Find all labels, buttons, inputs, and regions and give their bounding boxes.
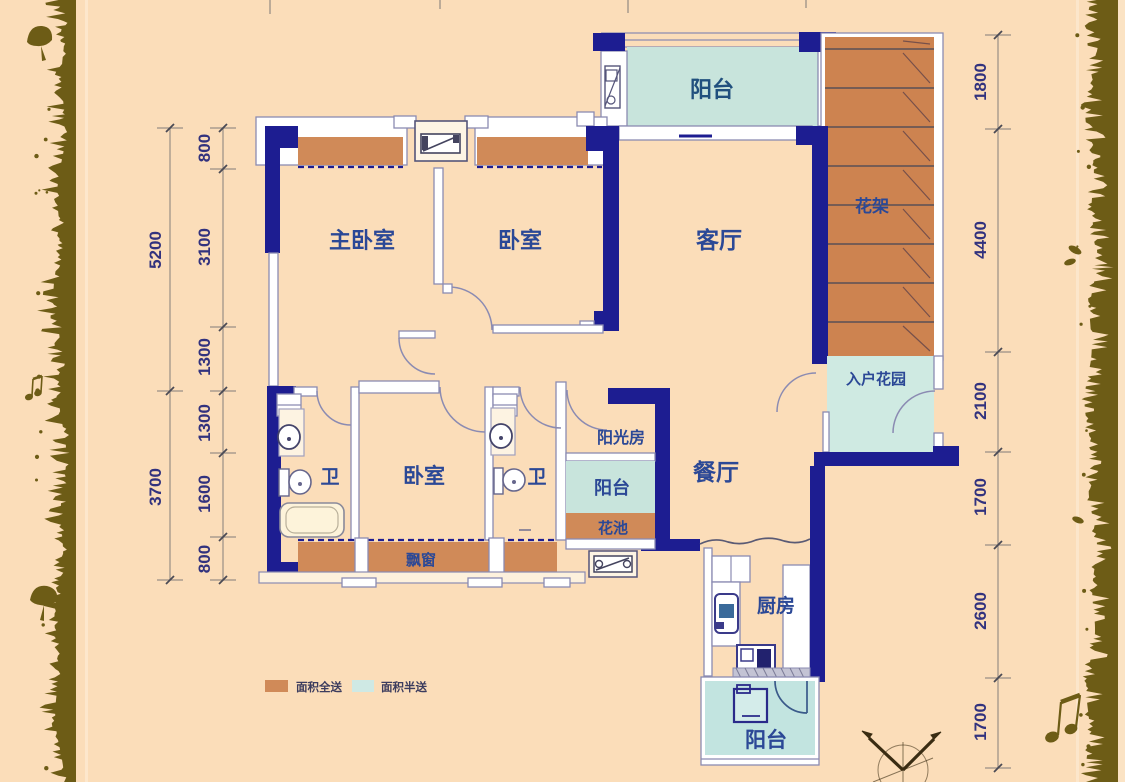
svg-text:800: 800 [195,545,214,573]
svg-text:2100: 2100 [971,382,990,420]
svg-text:4400: 4400 [971,221,990,259]
svg-text:5200: 5200 [146,231,165,269]
svg-text:卫: 卫 [527,467,546,488]
svg-text:花架: 花架 [855,196,889,216]
svg-text:飘窗: 飘窗 [406,551,436,569]
svg-text:1800: 1800 [971,63,990,101]
svg-text:餐厅: 餐厅 [693,459,739,485]
svg-text:1300: 1300 [195,338,214,376]
svg-text:1700: 1700 [971,703,990,741]
svg-text:入户花园: 入户花园 [846,370,906,388]
svg-text:阳台: 阳台 [594,477,630,498]
svg-text:阳光房: 阳光房 [597,428,645,447]
svg-text:阳台: 阳台 [745,728,787,752]
svg-text:800: 800 [195,134,214,162]
svg-text:卧室: 卧室 [403,464,445,488]
svg-text:阳台: 阳台 [690,77,734,102]
svg-text:卧室: 卧室 [498,228,542,253]
svg-text:3100: 3100 [195,228,214,266]
svg-text:花池: 花池 [598,519,628,537]
svg-text:3700: 3700 [146,468,165,506]
svg-text:面积全送: 面积全送 [296,680,342,694]
svg-text:1600: 1600 [195,475,214,513]
svg-text:2600: 2600 [971,592,990,630]
svg-text:卫: 卫 [320,467,339,488]
svg-text:厨房: 厨房 [757,594,795,617]
svg-text:面积半送: 面积半送 [381,680,427,694]
svg-text:客厅: 客厅 [696,227,742,253]
svg-text:主卧室: 主卧室 [329,228,395,253]
svg-text:1300: 1300 [195,404,214,442]
svg-text:1700: 1700 [971,478,990,516]
